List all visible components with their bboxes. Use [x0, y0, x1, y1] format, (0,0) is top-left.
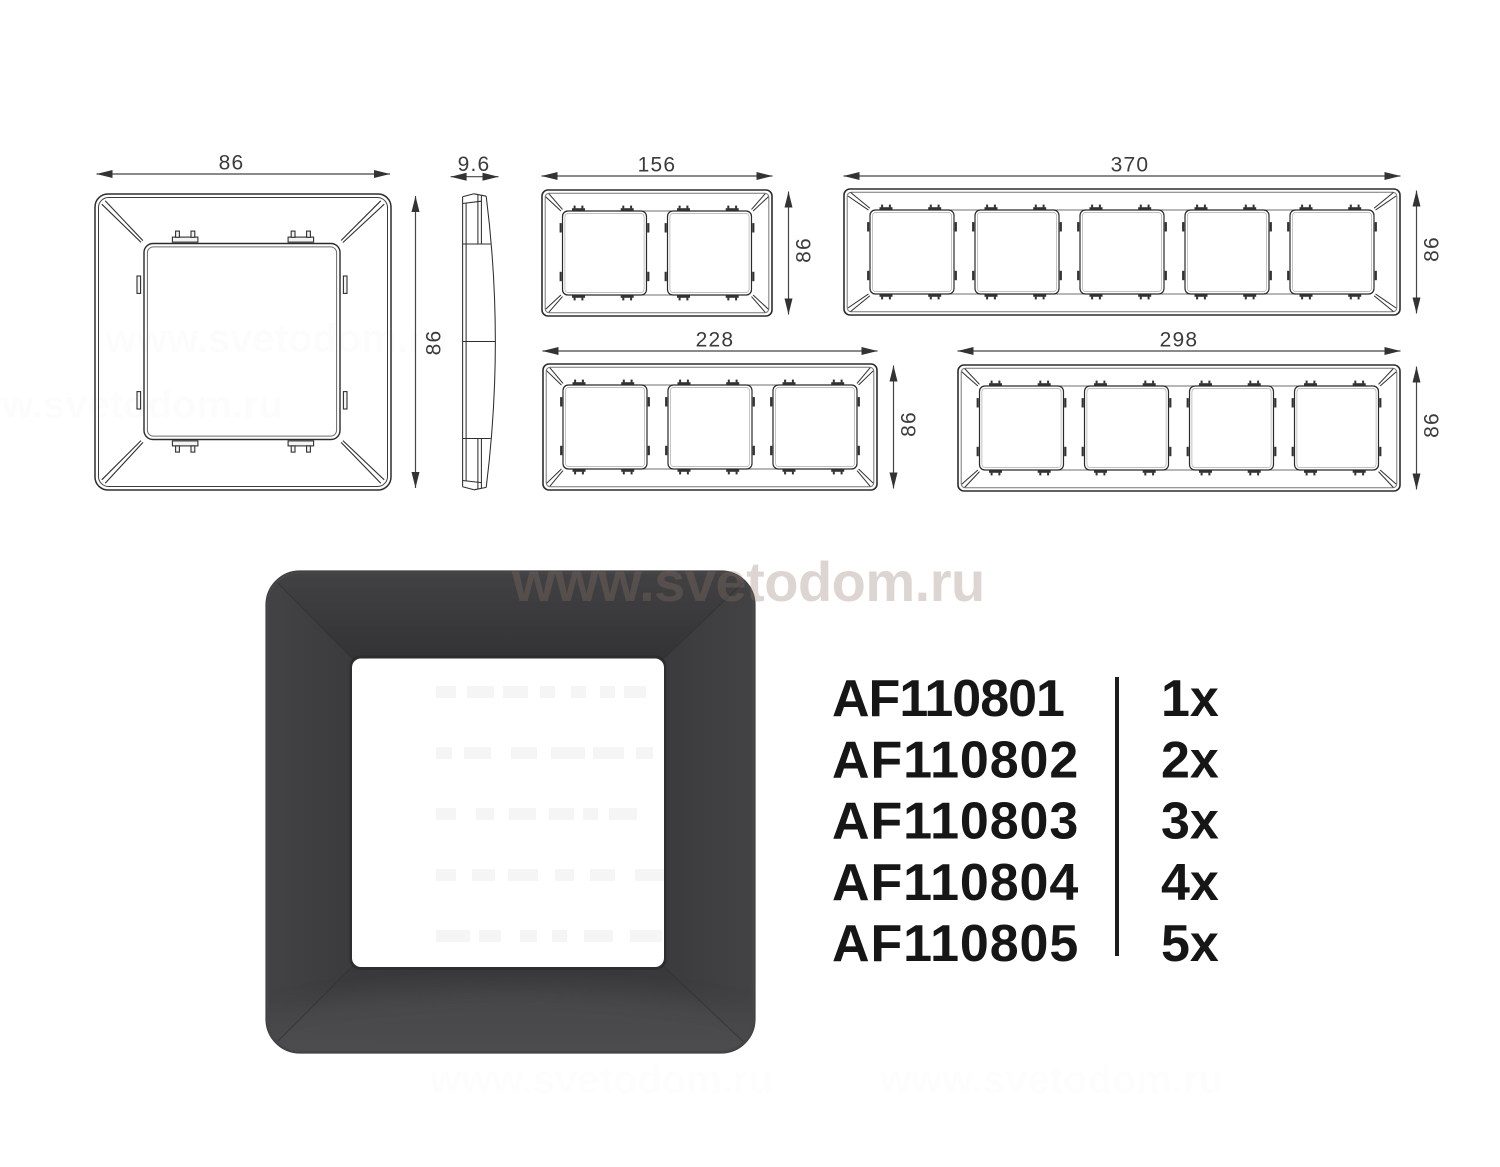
- svg-text:www.svetodom.ru: www.svetodom.ru: [511, 550, 985, 613]
- svg-text:AF110805: AF110805: [832, 915, 1079, 973]
- svg-text:AF110802: AF110802: [832, 731, 1079, 789]
- svg-text:298: 298: [1160, 329, 1199, 352]
- svg-text:5x: 5x: [1161, 915, 1219, 973]
- svg-text:AF110804: AF110804: [832, 854, 1079, 912]
- svg-text:www.svetodom.ru: www.svetodom.ru: [879, 1058, 1223, 1102]
- svg-text:86: 86: [1421, 412, 1444, 438]
- svg-text:86: 86: [219, 152, 245, 175]
- svg-text:www.svetodom.ru: www.svetodom.ru: [0, 383, 283, 427]
- svg-text:9.6: 9.6: [458, 153, 491, 176]
- svg-text:4x: 4x: [1161, 854, 1219, 912]
- svg-text:86: 86: [423, 330, 446, 356]
- svg-text:86: 86: [793, 237, 816, 263]
- svg-text:370: 370: [1111, 154, 1150, 177]
- svg-text:AF110801: AF110801: [832, 670, 1064, 728]
- svg-text:AF110803: AF110803: [832, 793, 1079, 851]
- svg-text:www.svetodom.ru: www.svetodom.ru: [429, 1058, 773, 1102]
- svg-text:156: 156: [638, 154, 677, 177]
- svg-text:2x: 2x: [1161, 731, 1219, 789]
- svg-text:228: 228: [696, 329, 735, 352]
- svg-text:www.svetodom.ru: www.svetodom.ru: [104, 317, 448, 361]
- svg-text:3x: 3x: [1161, 793, 1219, 851]
- svg-text:86: 86: [1421, 236, 1444, 262]
- svg-text:1x: 1x: [1161, 670, 1219, 728]
- svg-text:86: 86: [898, 411, 921, 437]
